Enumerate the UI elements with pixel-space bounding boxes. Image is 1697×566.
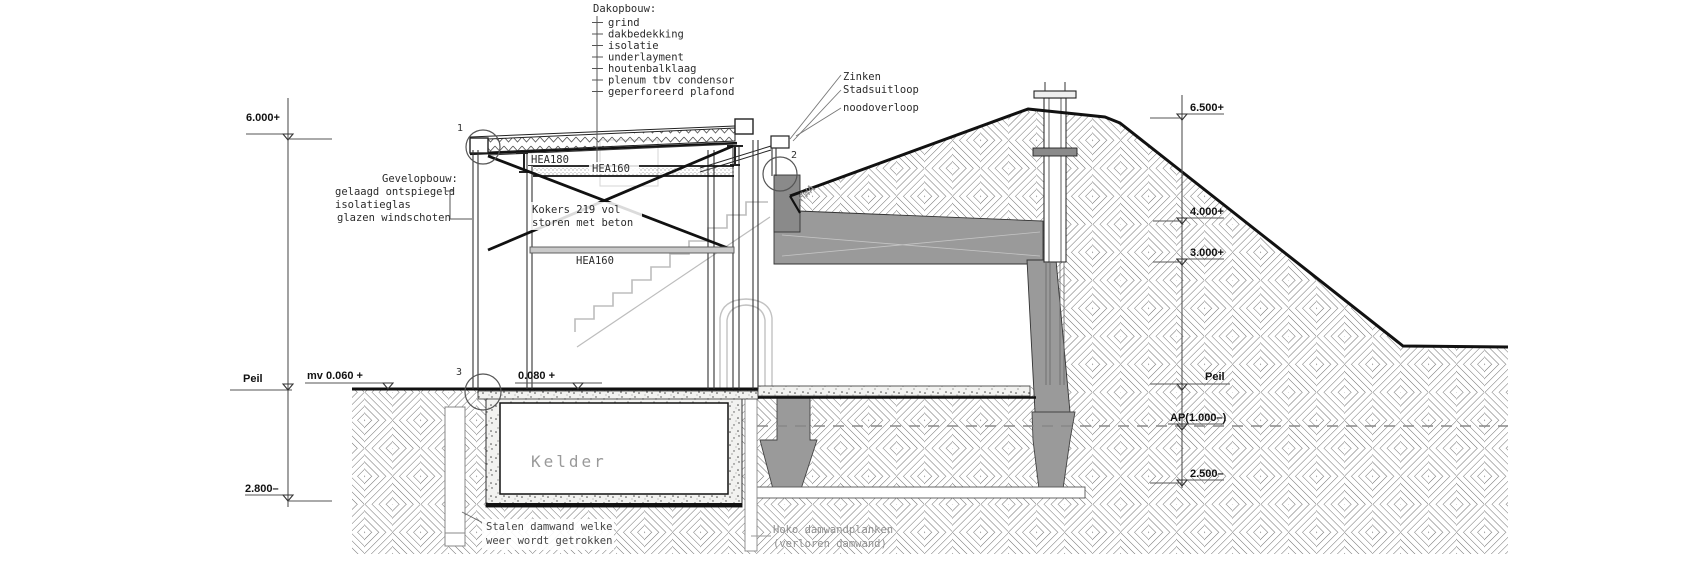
- pavilion-floor-slab: [478, 391, 758, 399]
- gevelopbouw-annotation: Gevelopbouw: gelaagd ontspiegeld isolati…: [335, 173, 472, 224]
- level-mv-0060: mv 0.060 +: [307, 370, 363, 382]
- label-hea180: HEA180: [531, 154, 569, 166]
- right-parapet-box: [735, 119, 753, 134]
- dakopbouw-item-plafond: geperforeerd plafond: [608, 86, 734, 98]
- hoko-sheet-pile: [745, 398, 757, 551]
- label-stalen-2: weer wordt getrokken: [486, 535, 612, 547]
- dakopbouw-item-grind: grind: [608, 17, 640, 29]
- label-kokers-2: storen met beton: [532, 217, 633, 229]
- shaft-cap: [1034, 91, 1076, 98]
- level-ap-1000: AP(1.000–): [1170, 412, 1227, 424]
- label-kelder: Kelder: [531, 452, 607, 471]
- detail-number-1: 1: [457, 123, 463, 134]
- level-2500: 2.500–: [1190, 468, 1224, 480]
- glass-walls: [473, 140, 776, 389]
- level-peil-left: Peil: [243, 373, 263, 385]
- level-2800: 2.800–: [245, 483, 279, 495]
- detail-number-3: 3: [456, 367, 462, 378]
- gevelopbouw-item-glas: gelaagd ontspiegeld: [335, 186, 455, 198]
- level-3000: 3.000+: [1190, 247, 1224, 259]
- left-dimension-column: [230, 98, 332, 507]
- dakopbouw-item-houtenbalklaag: houtenbalklaag: [608, 63, 697, 75]
- level-6500: 6.500+: [1190, 102, 1224, 114]
- label-zinken: Zinken: [843, 71, 881, 83]
- gevelopbouw-leader: [446, 191, 472, 219]
- dakopbouw-item-plenum: plenum tbv condensor: [608, 75, 734, 87]
- gevelopbouw-item-isolatieglas: isolatieglas: [335, 199, 411, 211]
- dakopbouw-title: Dakopbouw:: [593, 3, 656, 15]
- label-stalen-1: Stalen damwand welke: [486, 521, 612, 533]
- stadsuitloop-gutter-box: [771, 136, 789, 148]
- steel-sheet-pile: [445, 407, 465, 546]
- foundation-raft: [755, 487, 1085, 498]
- casemate-floor-slab: [758, 386, 1030, 396]
- level-peil-right: Peil: [1205, 371, 1225, 383]
- kelder-interior: [500, 403, 728, 494]
- stadsuitloop-leader-1: [790, 75, 841, 139]
- shaft-body: [1044, 98, 1066, 262]
- label-hoko-2: (verloren damwand): [773, 538, 887, 550]
- label-hoko-1: Hoko damwandplanken: [773, 524, 893, 536]
- level-6000: 6.000+: [246, 112, 280, 124]
- dakopbouw-item-dakbedekking: dakbedekking: [608, 29, 684, 41]
- hwa-gutter-block: [774, 175, 800, 232]
- dakopbouw-item-isolatie: isolatie: [608, 40, 659, 52]
- dakopbouw-item-underlayment: underlayment: [608, 52, 684, 64]
- hea160-lower-beam: [530, 247, 734, 253]
- label-stadsuitloop: Stadsuitloop: [843, 84, 919, 96]
- level-4000: 4.000+: [1190, 206, 1224, 218]
- detail-number-2: 2: [791, 150, 797, 161]
- drawing-canvas: 6.000+ Peil 2.800– mv 0.060 + 0.080 + 6.…: [0, 0, 1697, 566]
- shaft-flange: [1033, 148, 1077, 156]
- label-hea160-bottom: HEA160: [576, 255, 614, 267]
- label-kokers-1: Kokers 219 vol: [532, 204, 621, 216]
- kelder-box: [486, 396, 742, 507]
- gevelopbouw-item-windschoten: glazen windschoten: [337, 212, 451, 224]
- section-drawing: 6.000+ Peil 2.800– mv 0.060 + 0.080 + 6.…: [0, 0, 1697, 566]
- level-0080: 0.080 +: [518, 370, 555, 382]
- gevelopbouw-title: Gevelopbouw:: [382, 173, 458, 185]
- label-noodoverloop: noodoverloop: [843, 102, 919, 114]
- label-hea160-top: HEA160: [592, 163, 630, 175]
- noodoverloop-leader: [796, 108, 841, 136]
- roofdrain-annotation: Zinken Stadsuitloop noodoverloop: [790, 71, 919, 141]
